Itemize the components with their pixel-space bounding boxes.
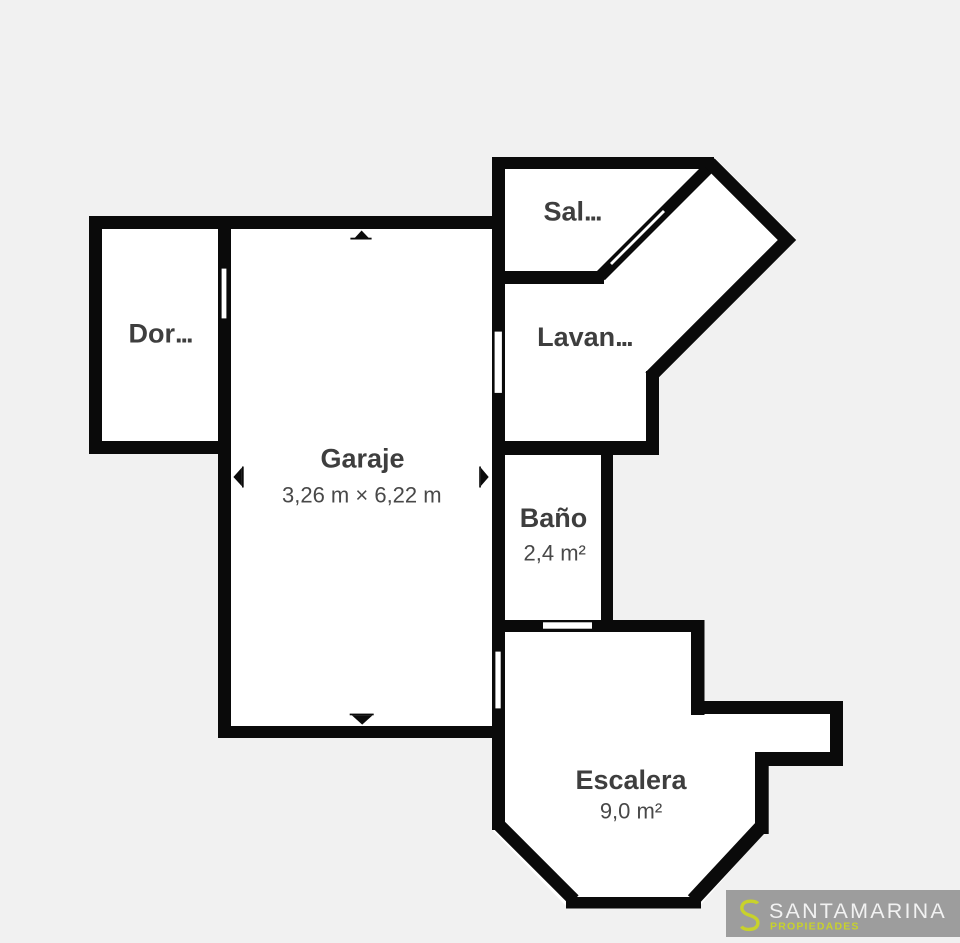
svg-text:Sal...: Sal...	[543, 197, 601, 227]
svg-text:SANTAMARINA: SANTAMARINA	[769, 899, 947, 923]
svg-text:PROPIEDADES: PROPIEDADES	[770, 921, 860, 933]
svg-text:Dor...: Dor...	[128, 319, 192, 349]
svg-text:Escalera: Escalera	[575, 765, 687, 795]
svg-text:9,0 m²: 9,0 m²	[600, 799, 662, 824]
svg-text:2,4 m²: 2,4 m²	[524, 541, 586, 566]
svg-text:Lavan...: Lavan...	[537, 322, 632, 352]
svg-text:Baño: Baño	[520, 503, 588, 533]
svg-text:3,26 m × 6,22 m: 3,26 m × 6,22 m	[282, 483, 442, 508]
svg-text:Garaje: Garaje	[320, 444, 404, 474]
